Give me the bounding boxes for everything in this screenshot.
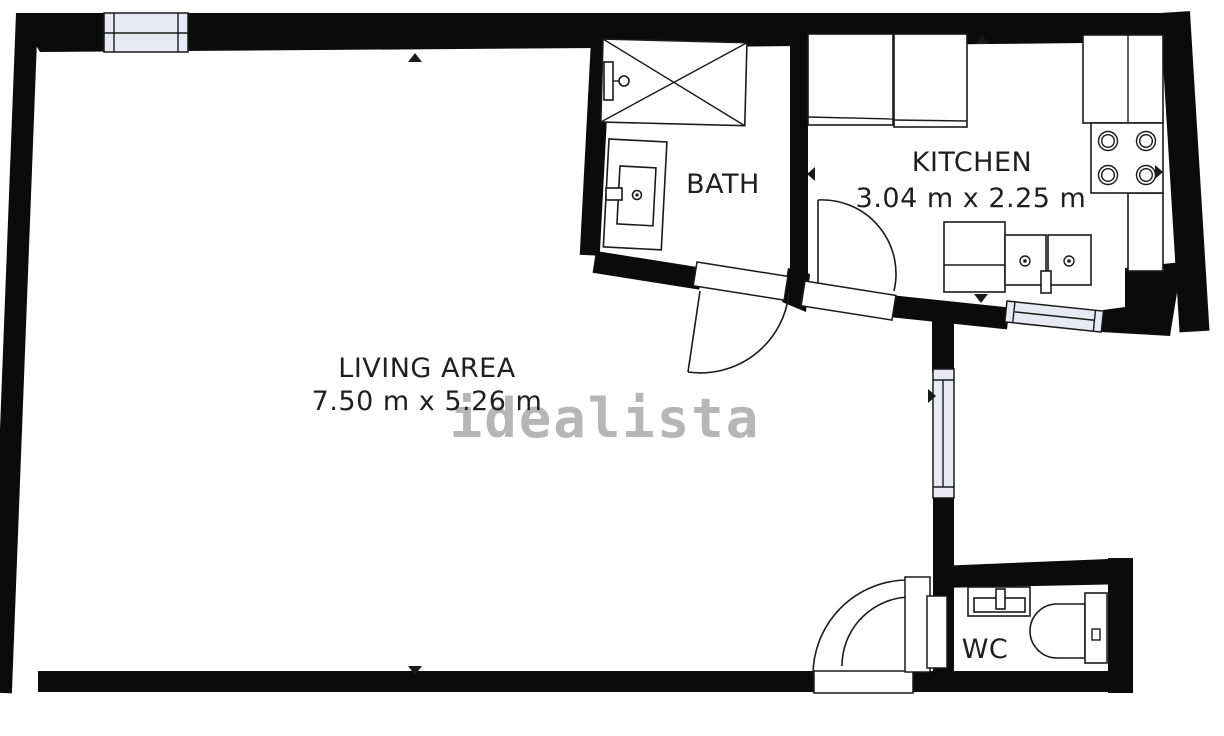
bath-sink: [603, 139, 667, 250]
marker-up-icon: [408, 53, 422, 62]
bath-door-threshold: [693, 262, 788, 300]
bath-fixtures: [601, 39, 747, 250]
entrance-threshold: [814, 671, 913, 693]
floor-plan-image: idealista LIVING AREA 7.50 m x 5.26 m BA…: [0, 0, 1224, 736]
kitchen-counter-top-right: [894, 34, 967, 127]
kitchen-corner-wall: [1101, 262, 1182, 336]
wc-top-wall: [938, 558, 1133, 588]
living-area-label: LIVING AREA: [338, 353, 515, 384]
kitchen-door-threshold: [801, 281, 896, 320]
bath-door-leaf: [688, 291, 700, 372]
kitchen-counter-top-left: [808, 34, 893, 125]
left-wall: [0, 13, 38, 693]
entrance-door-arc-outer: [813, 580, 907, 675]
kitchen-window: [1005, 301, 1104, 332]
bath-door-arc: [688, 293, 789, 373]
kitchen-faucet-icon: [1041, 271, 1051, 293]
stove-icon: [1091, 123, 1163, 193]
side-window: [933, 369, 954, 498]
corridor-wall-upper: [932, 310, 954, 372]
kitchen-dimensions: 3.04 m x 2.25 m: [856, 183, 1087, 214]
bottom-wall: [38, 671, 1133, 692]
toilet-icon: [1030, 593, 1107, 663]
marker-down-icon: [974, 294, 988, 303]
kitchen-sink-icon: [1005, 235, 1091, 293]
kitchen-label: KITCHEN: [912, 147, 1033, 178]
wc-right-wall: [1108, 558, 1133, 693]
floor-plan-svg: idealista LIVING AREA 7.50 m x 5.26 m BA…: [0, 0, 1224, 736]
bath-bottom-wall: [593, 251, 703, 290]
marker-left-icon: [807, 167, 815, 181]
kitchen-sink-counter: [944, 222, 1005, 292]
wc-sink-icon: [968, 587, 1030, 616]
bath-kitchen-divider-wall: [790, 13, 808, 283]
top-window: [104, 13, 188, 52]
living-area-dimensions: 7.50 m x 5.26 m: [312, 386, 543, 417]
bath-faucet-icon: [606, 188, 622, 200]
wc-door-opening: [927, 596, 947, 668]
bath-label: BATH: [686, 169, 760, 200]
wc-label: WC: [962, 634, 1009, 665]
entrance-door-arc-inner: [842, 597, 911, 666]
